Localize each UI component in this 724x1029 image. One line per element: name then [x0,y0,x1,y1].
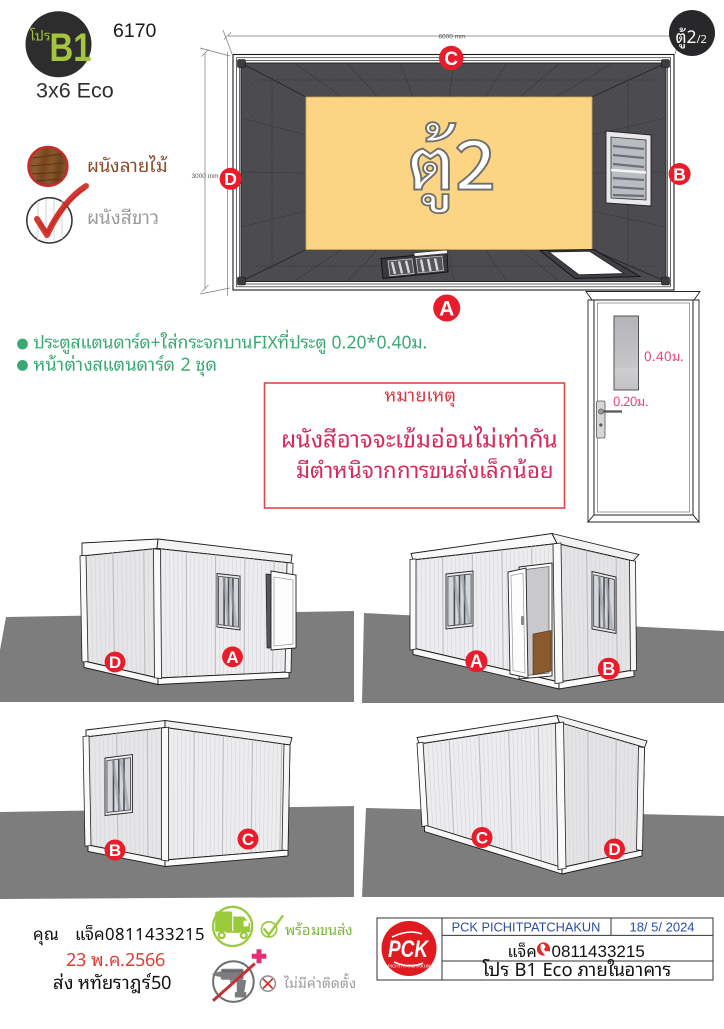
svg-text:PCK PICHITPATCHAKUN: PCK PICHITPATCHAKUN [452,920,601,935]
svg-text:PICHITPATCHAKUN: PICHITPATCHAKUN [388,964,431,969]
svg-text:3x6 Eco: 3x6 Eco [36,79,114,103]
svg-text:D: D [109,653,121,672]
svg-text:0811433215: 0811433215 [552,942,645,961]
svg-text:6000 mm: 6000 mm [438,34,465,41]
svg-text:18/ 5/ 2024: 18/ 5/ 2024 [629,920,694,935]
svg-text:6170: 6170 [113,20,157,42]
svg-text:PCK: PCK [388,936,429,963]
svg-text:3000 mm: 3000 mm [191,173,218,180]
svg-text:A: A [439,298,454,321]
svg-text:C: C [242,830,254,849]
svg-text:C: C [476,829,488,848]
svg-text:C: C [444,49,458,70]
svg-text:B: B [602,659,615,679]
svg-text:A: A [226,648,238,667]
svg-text:D: D [608,840,620,859]
svg-text:D: D [224,169,237,189]
svg-text:A: A [470,652,483,672]
svg-text:B: B [673,164,686,184]
svg-text:B1: B1 [50,26,92,70]
svg-text:B: B [109,841,121,860]
